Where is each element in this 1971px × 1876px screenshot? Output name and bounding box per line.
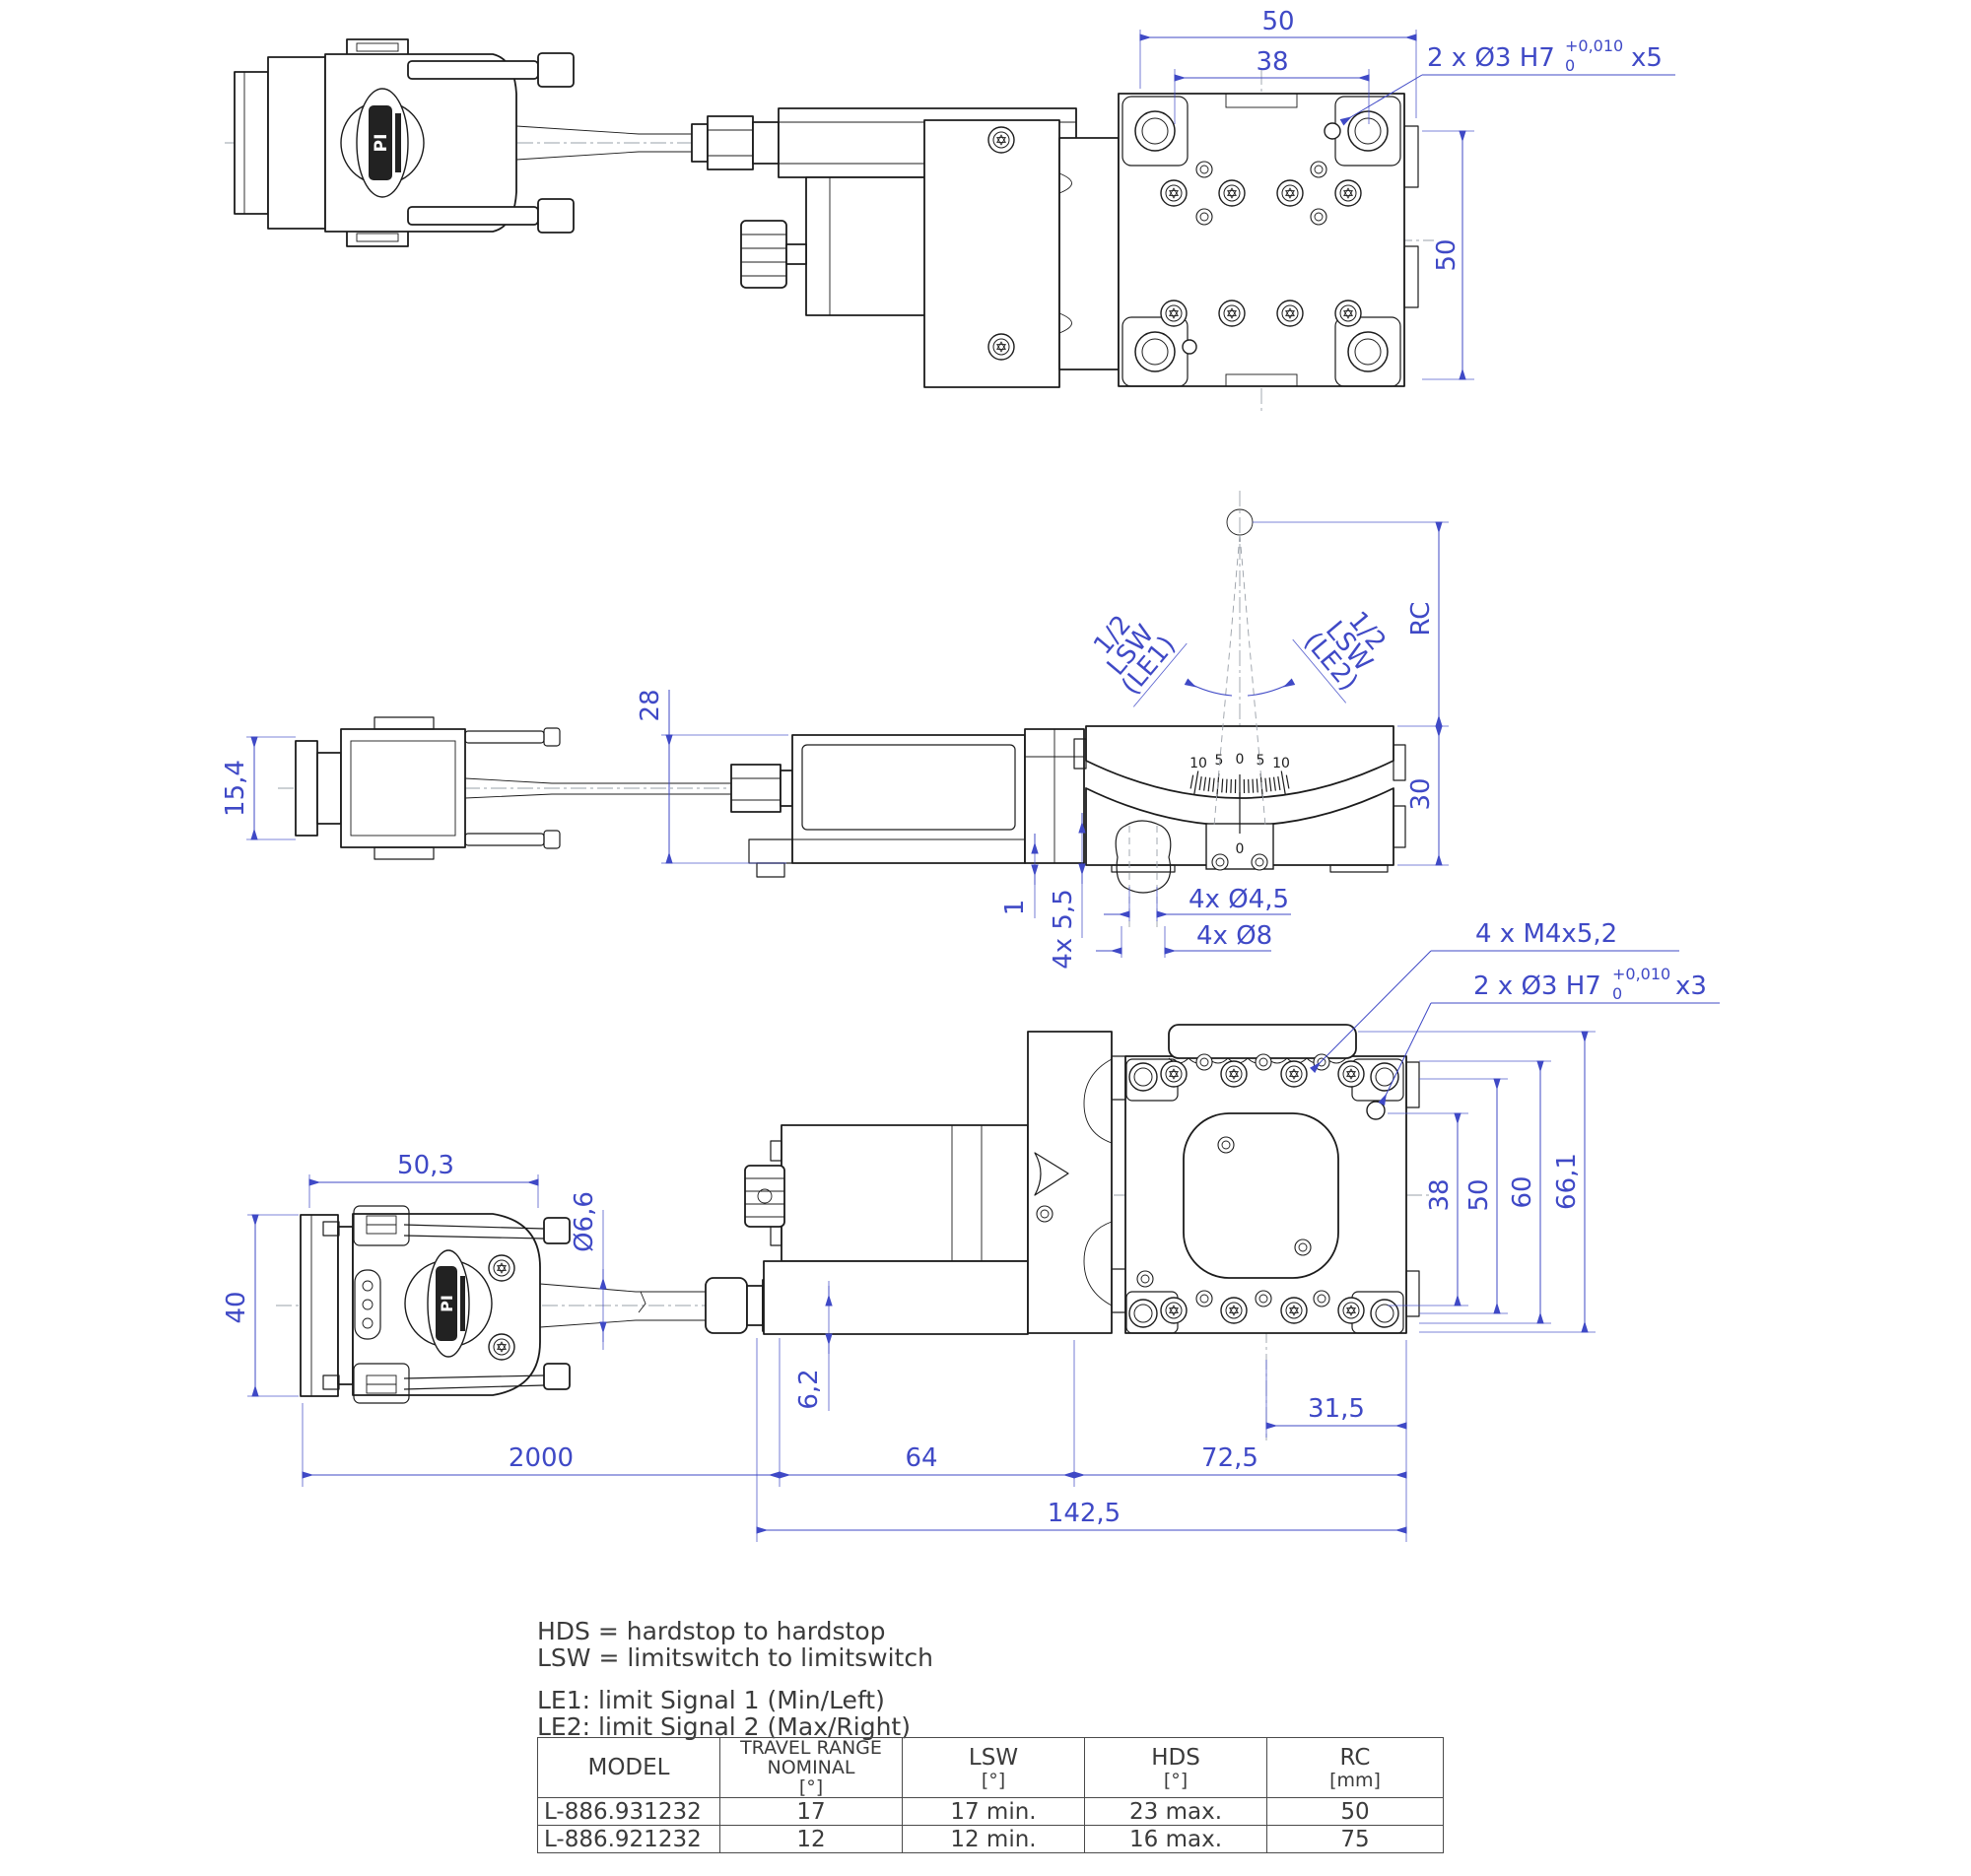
label-lsw-le1: 1/2 LSW (LE1) <box>1075 594 1188 706</box>
svg-text:10: 10 <box>1189 756 1207 771</box>
table-row-model-1: L-886.931232 17 17 min. 23 max. 50 <box>538 1798 1444 1826</box>
svg-text:0: 0 <box>1565 56 1575 75</box>
view-top-plan: PI <box>225 7 1675 414</box>
svg-text:4 x M4x5,2: 4 x M4x5,2 <box>1475 919 1617 949</box>
stage-housing-front <box>1028 1032 1125 1333</box>
dowel-hole-top <box>1325 123 1340 139</box>
stage-base-top <box>924 120 1119 387</box>
view-side-elevation: 10 5 0 5 10 0 1/2 LSW (LE1) 1/2 LSW (LE2… <box>221 491 1449 970</box>
note-hds: HDS = hardstop to hardstop <box>537 1618 933 1644</box>
engineering-drawing-page: PI <box>0 0 1971 1876</box>
dim-50-height: 50 <box>1432 238 1461 271</box>
col-model: MODEL <box>538 1738 720 1798</box>
dim-4x-5-5: 4x 5,5 <box>1049 889 1078 970</box>
dim-dia-6-6: Ø6,6 <box>570 1191 599 1252</box>
dim-38-front: 38 <box>1425 1178 1455 1211</box>
goniometer-stage-side: 10 5 0 5 10 0 <box>1074 726 1405 872</box>
leader-dowel-holes-front: 2 x Ø3 H7 +0,010 0 x3 <box>1382 965 1720 1104</box>
svg-text:5: 5 <box>1257 753 1265 769</box>
col-hds: HDS [°] <box>1085 1738 1267 1798</box>
dim-6-2: 6,2 <box>794 1369 824 1409</box>
svg-text:2 x Ø3 H7: 2 x Ø3 H7 <box>1427 43 1555 73</box>
dim-1: 1 <box>1000 900 1030 916</box>
dim-4x-dia45: 4x Ø4,5 <box>1189 885 1289 914</box>
stage-platform-front <box>1125 1025 1419 1333</box>
pi-logo-text: PI <box>372 134 391 153</box>
model-spec-table: MODEL TRAVEL RANGE NOMINAL [°] LSW [°] H… <box>537 1737 1444 1853</box>
view-front-elevation: PI <box>222 919 1720 1542</box>
note-le2: LE2: limit Signal 2 (Max/Right) <box>537 1713 933 1740</box>
stage-platform-top <box>1119 94 1418 386</box>
dim-30: 30 <box>1406 777 1436 810</box>
motor-front <box>745 1125 1028 1334</box>
col-lsw: LSW [°] <box>903 1738 1085 1798</box>
pointer-zero-label: 0 <box>1236 841 1245 857</box>
table-row-model-2: L-886.921232 12 12 min. 16 max. 75 <box>538 1826 1444 1853</box>
dsub-connector-front: PI <box>301 1206 570 1403</box>
note-le1: LE1: limit Signal 1 (Min/Left) <box>537 1687 933 1713</box>
svg-text:10: 10 <box>1272 756 1290 771</box>
svg-text:2 x Ø3 H7: 2 x Ø3 H7 <box>1473 971 1601 1001</box>
dim-40: 40 <box>222 1291 251 1323</box>
svg-text:PI: PI <box>438 1295 456 1312</box>
svg-text:+0,010: +0,010 <box>1565 36 1623 55</box>
dim-142-5: 142,5 <box>1048 1499 1121 1528</box>
dim-15-4: 15,4 <box>221 760 250 817</box>
adjustment-knob-top <box>741 221 806 288</box>
dim-60: 60 <box>1508 1175 1537 1208</box>
dim-64: 64 <box>905 1443 937 1473</box>
dim-50-width: 50 <box>1261 7 1294 36</box>
dim-72-5: 72,5 <box>1201 1443 1258 1473</box>
legend-notes: HDS = hardstop to hardstop LSW = limitsw… <box>537 1618 933 1740</box>
dim-4x-dia8: 4x Ø8 <box>1196 921 1272 951</box>
dim-28: 28 <box>636 689 665 721</box>
pi-logo-top: PI <box>369 105 401 180</box>
dim-50-3: 50,3 <box>397 1151 454 1180</box>
svg-text:x5: x5 <box>1631 43 1663 73</box>
svg-text:x3: x3 <box>1675 971 1707 1001</box>
dim-31-5: 31,5 <box>1308 1394 1365 1424</box>
platform-pocket <box>1184 1113 1338 1278</box>
svg-text:5: 5 <box>1215 753 1224 769</box>
svg-text:+0,010: +0,010 <box>1612 965 1670 983</box>
pi-logo-front: PI <box>436 1266 465 1341</box>
dim-38-holes: 38 <box>1256 47 1288 77</box>
motor-side <box>749 729 1084 877</box>
dim-50-front: 50 <box>1464 1178 1494 1211</box>
label-lsw-le2: 1/2 LSW (LE2) <box>1293 590 1405 703</box>
dowel-hole-front <box>1367 1102 1385 1119</box>
dim-2000: 2000 <box>509 1443 574 1473</box>
svg-text:0: 0 <box>1236 752 1245 768</box>
dim-rc: RC <box>1406 602 1436 636</box>
col-rc: RC [mm] <box>1267 1738 1444 1798</box>
vernier-pointer-block: 0 <box>1206 792 1273 870</box>
col-travel-range: TRAVEL RANGE NOMINAL [°] <box>720 1738 903 1798</box>
svg-text:0: 0 <box>1612 984 1622 1003</box>
dim-66-1: 66,1 <box>1552 1153 1582 1210</box>
technical-drawing-canvas: PI <box>0 0 1971 1876</box>
note-lsw: LSW = limitswitch to limitswitch <box>537 1644 933 1671</box>
adjustment-knob-front <box>745 1166 784 1227</box>
